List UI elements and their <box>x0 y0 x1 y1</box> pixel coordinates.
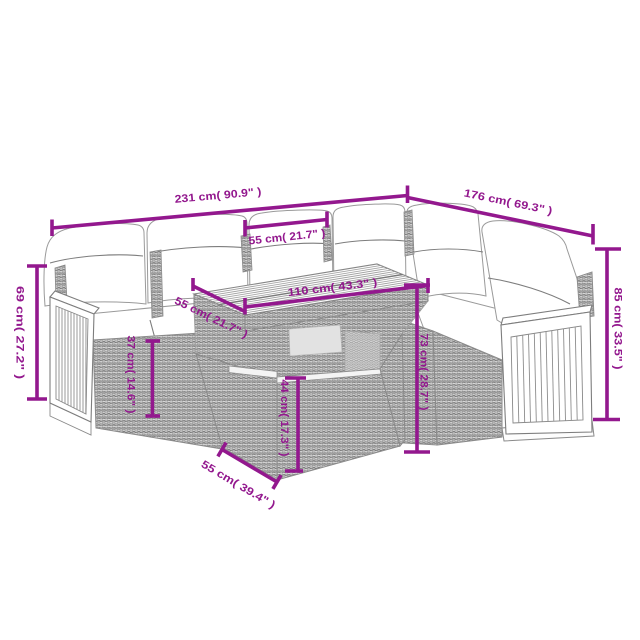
svg-text:73 cm( 28.7" ): 73 cm( 28.7" ) <box>418 334 430 411</box>
svg-text:37 cm( 14.6" ): 37 cm( 14.6" ) <box>125 336 137 414</box>
svg-text:85 cm( 33.5" ): 85 cm( 33.5" ) <box>612 288 624 370</box>
svg-text:44 cm( 17.3" ): 44 cm( 17.3" ) <box>278 380 290 457</box>
svg-text:69 cm( 27.2" ): 69 cm( 27.2" ) <box>14 286 26 379</box>
